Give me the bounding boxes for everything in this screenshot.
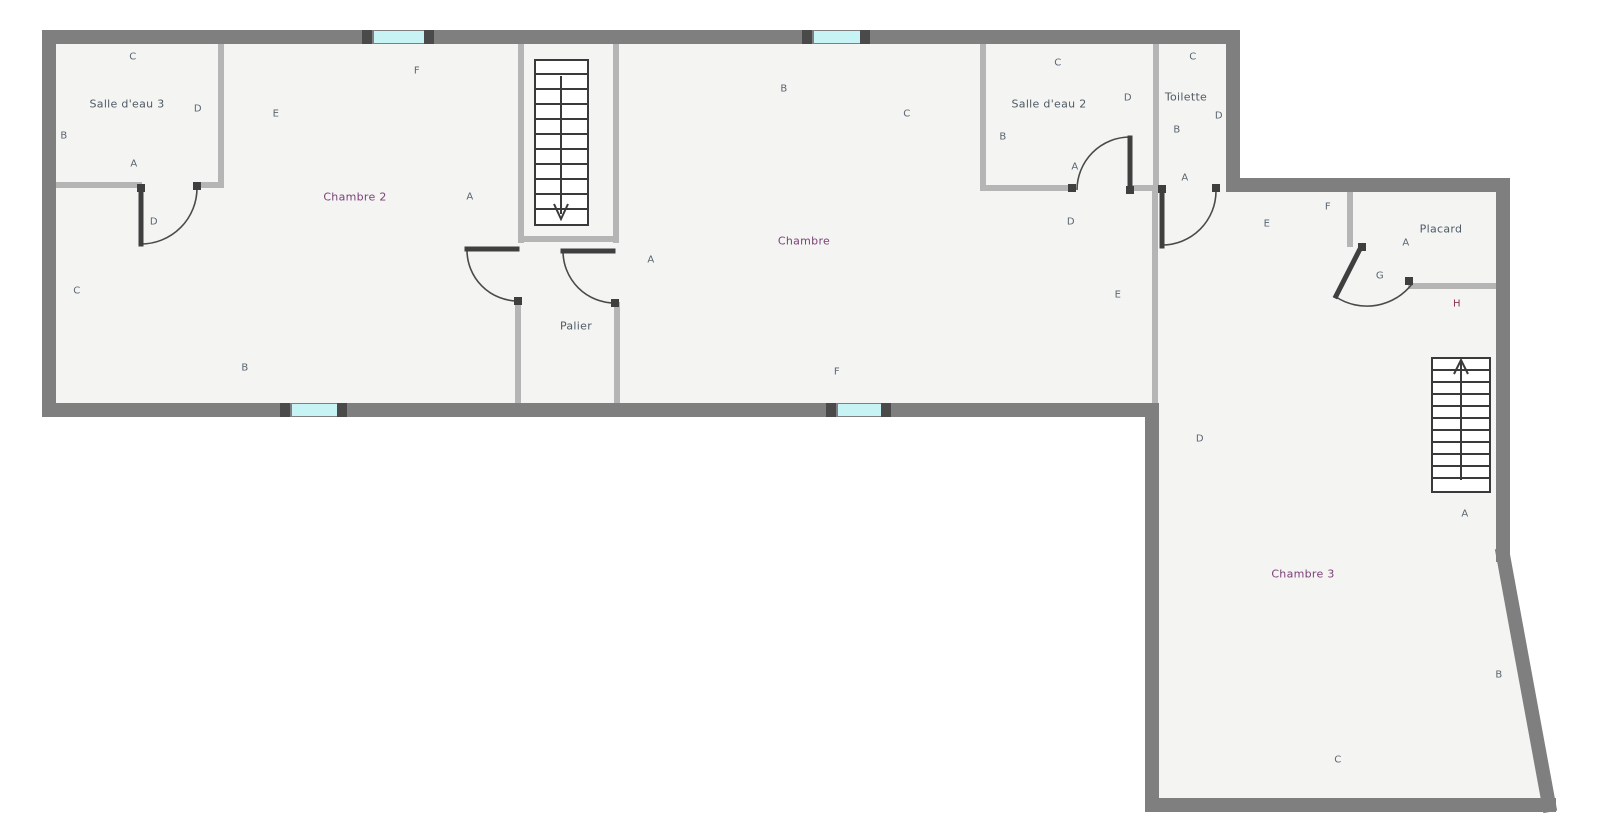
label-placard-wall-f: F <box>1325 202 1331 213</box>
label-chambre-2-wall-a: A <box>466 192 473 203</box>
floor-area <box>56 44 1542 798</box>
window-bottom-right <box>826 403 891 417</box>
label-salle-eau-3-wall-d: D <box>194 104 202 115</box>
label-placard-wall-h: H <box>1453 299 1461 310</box>
label-palier-door-a: A <box>647 255 654 266</box>
label-salle-eau-3-wall-b: B <box>60 131 67 142</box>
label-salle-eau-2-door-a: A <box>1071 162 1078 173</box>
label-chambre-wall-b: B <box>780 84 787 95</box>
room-title-salle-eau-3: Salle d'eau 3 <box>90 98 165 111</box>
room-title-chambre-3: Chambre 3 <box>1271 568 1334 581</box>
label-placard-door-g: G <box>1376 271 1384 282</box>
label-toilette-wall-c: C <box>1189 52 1196 63</box>
label-chambre-3-wall-c: C <box>1334 755 1341 766</box>
staircase-upper <box>535 60 588 225</box>
label-chambre-2-wall-b: B <box>241 363 248 374</box>
label-salle-eau-3-wall-c: C <box>129 52 136 63</box>
label-chambre-2-wall-e: E <box>273 109 280 120</box>
label-placard-wall-a: A <box>1402 238 1409 249</box>
label-salle-eau-3-wall-a: A <box>130 159 137 170</box>
label-chambre-wall-f: F <box>834 367 840 378</box>
room-title-placard: Placard <box>1420 223 1463 236</box>
label-chambre-2-wall-f: F <box>414 66 420 77</box>
room-title-chambre-2: Chambre 2 <box>323 191 386 204</box>
staircase-chambre3 <box>1432 358 1490 492</box>
label-chambre-2-wall-c: C <box>73 286 80 297</box>
label-toilette-wall-b: B <box>1173 125 1180 136</box>
label-placard-wall-e: E <box>1264 219 1271 230</box>
label-salle-eau-2-wall-c: C <box>1054 58 1061 69</box>
room-title-toilette: Toilette <box>1165 91 1207 104</box>
label-salle-eau-2-door-d: D <box>1067 217 1075 228</box>
label-salle-eau-3-door-d: D <box>150 217 158 228</box>
label-toilette-wall-a: A <box>1181 173 1188 184</box>
room-title-palier: Palier <box>560 320 592 333</box>
floor-plan: Salle d'eau 3 C D B A D Chambre 2 F E A … <box>0 0 1600 821</box>
room-title-salle-eau-2: Salle d'eau 2 <box>1012 98 1087 111</box>
label-chambre-wall-c: C <box>903 109 910 120</box>
label-salle-eau-2-wall-b: B <box>999 132 1006 143</box>
label-chambre-3-wall-d: D <box>1196 434 1204 445</box>
label-chambre-3-wall-b: B <box>1495 670 1502 681</box>
room-title-chambre: Chambre <box>778 235 830 248</box>
label-chambre-wall-e: E <box>1115 290 1122 301</box>
label-toilette-wall-d: D <box>1215 111 1223 122</box>
label-salle-eau-2-wall-d: D <box>1124 93 1132 104</box>
label-chambre-3-wall-a: A <box>1461 509 1468 520</box>
floor-plan-drawing <box>0 0 1600 821</box>
